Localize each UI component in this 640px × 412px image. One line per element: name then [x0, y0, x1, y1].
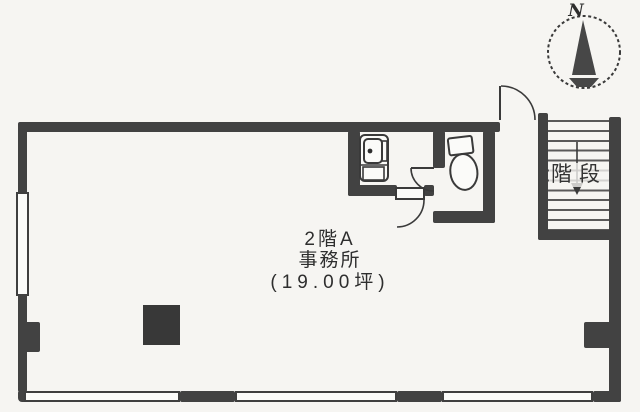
bottom-corner-right [593, 391, 621, 402]
stair-left-wall [538, 113, 548, 240]
wc-right-wall [483, 131, 495, 223]
left-wall-upper [18, 122, 27, 194]
bottom-wall-segment-1 [180, 391, 235, 402]
bottom-window-middle [235, 391, 397, 402]
compass-n-label: N [567, 1, 585, 21]
toilet-icon [446, 136, 479, 192]
right-wall-pillar [584, 322, 611, 348]
compass-north-icon: N [548, 1, 620, 88]
sink-unit-icon [360, 135, 388, 181]
room-label: 2階A 事務所 (19.00坪) [225, 229, 435, 295]
room-use: 事務所 [225, 250, 435, 271]
washroom-bottom-wall [348, 185, 397, 196]
room-floor-unit: 2階A [225, 229, 435, 250]
bottom-window-left [24, 391, 180, 402]
top-wall [18, 122, 500, 132]
left-window [16, 192, 29, 296]
wc-bottom-wall [433, 211, 495, 223]
stair-bottom-wall [538, 230, 621, 240]
bottom-window-right [442, 391, 593, 402]
floor-plan: 階段 2階A 事務所 (19.00坪) [0, 0, 640, 412]
entry-door-swing-icon [500, 86, 535, 120]
stairs-label: 階段 [549, 163, 609, 187]
room-area: (19.00坪) [225, 271, 435, 295]
bottom-wall-segment-2 [397, 391, 442, 402]
left-wall-pillar [18, 322, 40, 352]
washroom-door-stub [424, 185, 434, 196]
right-wall [609, 117, 621, 402]
room-pillar [143, 305, 180, 345]
washroom-door-swing-icon [396, 188, 424, 227]
wc-partition-wall [433, 131, 445, 168]
